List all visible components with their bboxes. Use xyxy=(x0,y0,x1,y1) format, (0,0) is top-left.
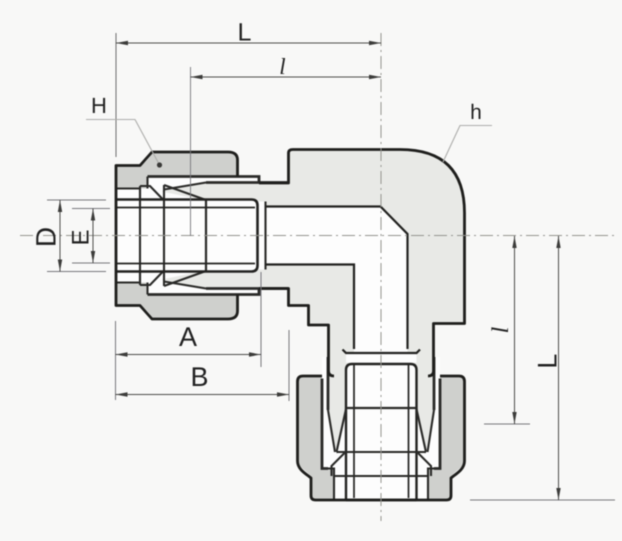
svg-text:l: l xyxy=(488,326,514,333)
svg-text:A: A xyxy=(179,322,197,352)
svg-text:l: l xyxy=(279,54,285,79)
svg-text:D: D xyxy=(30,227,61,247)
svg-text:h: h xyxy=(470,101,482,124)
svg-text:E: E xyxy=(68,229,95,245)
svg-text:L: L xyxy=(238,19,252,47)
svg-text:L: L xyxy=(533,354,563,369)
svg-text:B: B xyxy=(190,362,208,392)
svg-text:H: H xyxy=(91,93,107,118)
